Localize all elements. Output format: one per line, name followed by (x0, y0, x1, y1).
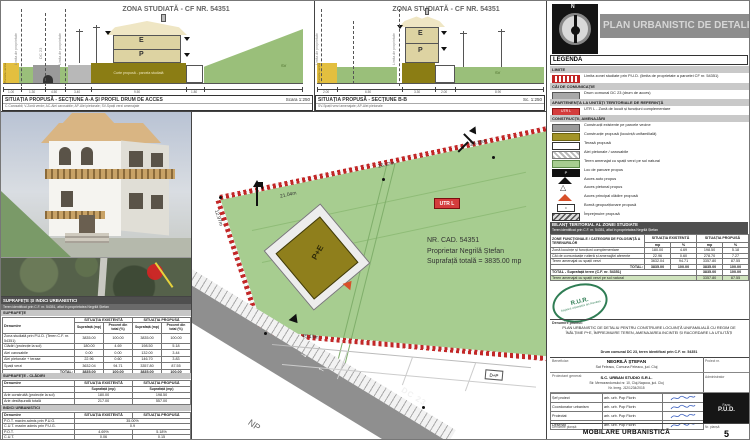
floor-line (405, 43, 439, 44)
divider-line (550, 423, 750, 424)
legend-swatch-terrace (552, 142, 580, 150)
indici-table: DenumireSITUAȚIA EXISTENTĂSITUAȚIA PROPU… (2, 412, 190, 440)
dim-tick (402, 87, 403, 92)
dim-label: 9.50 (134, 90, 140, 94)
render-window (81, 147, 93, 165)
floor-label-p: P (418, 47, 423, 54)
legend-label: Acces pietonal propus (584, 185, 746, 189)
legend-item: • Bornă geopoziționare propusă (552, 203, 748, 212)
legend-item: Împrejmuire propusă (552, 212, 748, 221)
legend-swatch-boundary (552, 75, 580, 83)
legend-item: Acces principal clădire propusă (552, 194, 748, 203)
utility-pole (501, 29, 502, 67)
ground-line (3, 83, 303, 84)
role-label: Șef proiect (551, 394, 603, 403)
section-a-title: ZONA STUDIATĂ - CF NR. 54351 (91, 6, 261, 13)
legend-item: Limita zonei studiate prin P.U.D. (limit… (552, 74, 748, 83)
compass-n-label: N (571, 4, 575, 10)
dim-label: 4.50 (51, 90, 57, 94)
role-label: Coordonator urbanism (551, 403, 603, 412)
geodetic-point (492, 156, 495, 159)
location-map (1, 258, 191, 296)
neighbor-parcel-strip: Parcela vecină (3, 63, 19, 83)
property-limit-line (399, 9, 400, 86)
cad-owner: Proprietar Negrilă Ștefan (427, 247, 545, 258)
cell: 3357.80 (697, 275, 723, 281)
render-porch (45, 211, 105, 219)
dim-tick (3, 87, 4, 92)
utility-pole (79, 29, 80, 63)
col-header: Suprafață (mp) (75, 323, 104, 334)
np-label: NP (246, 417, 262, 432)
neighbor-building-label: D+P (485, 369, 504, 381)
divider-line (550, 357, 750, 358)
signature-scribble (670, 412, 696, 420)
cell: 87.55 (723, 275, 749, 281)
legend-label: Construcție propusă (locuință unifamilia… (584, 132, 746, 136)
floor-label-e: E (418, 30, 423, 37)
dimension-line (3, 89, 303, 90)
cladiri-band: SUPRAFEȚE - CLĂDIRI (1, 373, 191, 379)
utility-pole (96, 25, 97, 63)
site-plan: → → DC 23 NP P+E UTR L NR. CAD. 54351 Pr… (192, 112, 546, 440)
render-window (151, 195, 163, 209)
section-b-caption-box: SITUAȚIA PROPUSĂ - SECȚIUNE B-BSc. 1:250… (315, 95, 545, 111)
col-header: Denumire (3, 318, 75, 334)
legend-item: Construcție propusă (locuință unifamilia… (552, 132, 748, 141)
ground-line (317, 83, 544, 84)
cell: 3835.00 (133, 334, 162, 344)
level-marker (441, 31, 447, 35)
dim-tick (45, 87, 46, 92)
neighbor-parcel-line (402, 357, 413, 386)
legend-swatch-parking: P (552, 169, 580, 177)
geodetic-point (219, 196, 222, 199)
dim-label: 2.00 (441, 90, 447, 94)
dim-label: 3.30 (414, 90, 420, 94)
terrain-wedge (204, 29, 303, 83)
dim-tick (21, 87, 22, 92)
utility-pole (93, 27, 100, 28)
render-window (59, 147, 71, 165)
green-strip (337, 67, 397, 83)
legend-item: P Loc de parcare propus (552, 168, 748, 177)
legend-swatch-geo-marker: • (557, 204, 575, 212)
utility-pole (76, 31, 83, 32)
legend-label: Bornă geopoziționare propusă (584, 203, 746, 207)
dim-label: 2.00 (323, 90, 329, 94)
bilant-subtitle: Teren identificat prin C.F. nr. 54351, a… (552, 228, 748, 233)
legend-label: Acces auto propus (584, 177, 746, 181)
owner-parcel-strip (402, 63, 435, 83)
legend-swatch-green-area (552, 160, 580, 168)
dim-tick (302, 87, 303, 92)
property-limit-line (353, 21, 354, 84)
dim-tick (435, 87, 436, 92)
proiect-nr-label: Proiect nr. (705, 359, 720, 363)
suprafete-band: SUPRAFEȚE (1, 310, 191, 316)
limit-label: Limita de proprietate (14, 15, 18, 65)
dim-tick (204, 87, 205, 92)
cladiri-table: DenumireSITUAȚIA EXISTENTĂSITUAȚIA PROPU… (2, 380, 190, 405)
table-row: Arie desfășurată totală (3, 399, 75, 405)
terrain-label: SV (495, 70, 500, 75)
bilant-table: ZONE FUNCȚIONALE / CATEGORII DE FOLOSINȚ… (550, 234, 748, 281)
beneficiar-name: NEGRILĂ ȘTEFAN (550, 359, 703, 364)
dim-tick (317, 87, 318, 92)
signature-scribble (670, 403, 696, 411)
legend-label: Împrejmuire propusă (584, 212, 746, 216)
cell: 557.00 (133, 399, 191, 405)
house-roof (399, 15, 445, 27)
neighbor-parcel-strip: Parcela vecină (317, 63, 337, 83)
bilant-header: BILANȚ TERITORIAL AL ZONEI STUDIATE Tere… (550, 222, 748, 234)
role-label: Proiectat (551, 412, 603, 421)
dim-label: 1.00 (8, 90, 14, 94)
legend-section-cai: CĂI DE COMUNICAȚIE (550, 83, 750, 90)
indici-band: INDICI URBANISTICI (1, 405, 191, 411)
plansa-name: MOBILARE URBANISTICĂ (550, 429, 703, 436)
road-axis-label: DC 23 (38, 29, 43, 59)
dim-tick (337, 87, 338, 92)
compass-hub (571, 26, 580, 35)
dim-tick (91, 87, 92, 92)
cell: 0.06 (75, 435, 133, 440)
floor-label-p: P (139, 51, 144, 58)
signature-scribble (670, 394, 696, 402)
limit-label: Limita de proprietate (315, 15, 319, 65)
project-description: PLAN URBANISTIC DE DETALIU PENTRU CONSTR… (550, 326, 748, 336)
role-name: arh. urb. Pop Florin (603, 403, 663, 412)
legend-swatch-alleys (552, 151, 580, 159)
property-limit-line (65, 9, 66, 86)
administrator-label: Administrator (705, 375, 724, 379)
dim-tick (186, 87, 187, 92)
chimney (161, 14, 166, 22)
col-header: Procent din total (%) (162, 323, 191, 334)
utility-pole (498, 31, 505, 32)
terrace-strip (435, 65, 455, 83)
legend-item: △ Acces pietonal propus (552, 185, 748, 194)
plansa-nr: 5 (703, 429, 750, 439)
render-balcony (45, 169, 175, 179)
owner-parcel-strip: Curte propusă - parcela studiată (91, 63, 186, 83)
terrain-label: SV (281, 63, 286, 68)
neighbor-parcel-line (465, 363, 476, 392)
legend-title: LEGENDĂ (550, 55, 748, 65)
map-road (97, 258, 107, 296)
table-row: C.U.T. (3, 435, 75, 440)
section-a-caption-box: SITUAȚIA PROPUSĂ - SECȚIUNE A-A ȘI PROFI… (2, 95, 313, 111)
section-b-caption: SITUAȚIA PROPUSĂ - SECȚIUNE B-B (318, 97, 407, 103)
geodetic-point (382, 178, 385, 181)
utility-pole (460, 33, 467, 34)
project-label: Denumire proiect: (552, 321, 583, 325)
legend-swatch-existing-buildings (552, 124, 580, 132)
legend-swatch-main-access (558, 194, 572, 201)
table-row: Zona studiată prin P.U.D. (Teren C.F. nr… (3, 334, 75, 344)
legend-label: Terasă propusă (584, 141, 746, 145)
legend-label: Loc de parcare propus (584, 168, 746, 172)
section-b-title: ZONA STUDIATĂ - CF NR. 54351 (366, 6, 526, 13)
suprafete-table: DenumireSITUAȚIA EXISTENTĂSITUAȚIA PROPU… (2, 317, 190, 376)
divider-line (550, 372, 750, 373)
level-marker (105, 31, 111, 35)
cell: 100.00 (162, 334, 191, 344)
col-header: SITUAȚIA PROPUSĂ (697, 235, 749, 243)
render-steps (65, 233, 109, 243)
proiectant-reg: Nr. înreg. J12/1234/2015 (550, 386, 703, 390)
property-limit-line (321, 9, 322, 86)
cell: 3835.00 (75, 334, 104, 344)
legend-label: Teren amenajat cu spații verzi pe sol na… (584, 159, 746, 163)
chimney (425, 8, 429, 15)
cell: 217.00 (75, 399, 133, 405)
road-strip (68, 65, 91, 83)
dim-tick (543, 87, 544, 92)
col-header: Procent din total (%) (104, 323, 133, 334)
geodetic-point (264, 332, 267, 335)
role-name: arh. urb. Pop Florin (603, 394, 663, 403)
zigzag-pointer-head (469, 125, 479, 135)
cell: 100.00 (104, 334, 133, 344)
limit-label: Limita de proprietate (58, 15, 62, 65)
faza-value: P.U.D. (718, 407, 735, 413)
page-title: PLAN URBANISTIC DE DETALIU (600, 14, 750, 38)
section-b-abbrev: SV-Spații verzi amenajate; AP-Alei pieto… (316, 103, 544, 108)
legend-label: Alei pietonale / carosabile (584, 150, 746, 154)
house-3d-render (1, 112, 191, 257)
tables-title-band: SUPRAFEȚE ȘI INDICI URBANISTICI (1, 297, 191, 304)
legend-label: Drum comunal DC 23 (drum de acces) (584, 91, 746, 95)
proiectant-name: S.C. URBAN STUDIO S.R.L. (550, 375, 703, 380)
legend-swatch-pedestrian-access: △ (560, 183, 566, 192)
faza-cell: Faza: P.U.D. (703, 393, 750, 423)
dim-label: 3.40 (74, 90, 80, 94)
floor-label-e: E (139, 37, 144, 44)
dim-label: 6.50 (365, 90, 371, 94)
legend-swatch-proposed-building (552, 133, 580, 141)
green-strip (60, 67, 68, 83)
geodetic-point (422, 406, 425, 409)
house-roof (107, 21, 187, 35)
cell: 0.15 (133, 435, 191, 440)
terrace-strip (186, 65, 203, 83)
divider-line (550, 319, 750, 320)
proiectant-address: Str. Memorandumului nr. 10, Cluj-Napoca,… (550, 381, 703, 385)
north-compass-icon: N (552, 4, 598, 54)
dim-tick (65, 87, 66, 92)
level-marker (441, 47, 447, 51)
dimension-line (317, 89, 544, 90)
legend-section-constructii: CONSTRUCȚII, AMENAJĂRI (550, 115, 750, 122)
green-total-row: Teren amenajat cu spații verzi pe sol na… (551, 275, 697, 281)
level-marker (184, 37, 190, 41)
dim-tick (455, 87, 456, 92)
legend-section-limite: LIMITE (550, 66, 750, 73)
legend-label: Limita zonei studiate prin P.U.D. (limit… (584, 74, 746, 78)
level-marker (184, 53, 190, 57)
signature-cell (663, 412, 704, 421)
beneficiar-address: Sat Feleacu, Comuna Feleacu, jud. Cluj (550, 365, 703, 369)
dim-label: 1.30 (29, 90, 35, 94)
col-header: Suprafață (mp) (133, 323, 162, 334)
legend-label: Construcții existente pe parcele vecine (584, 123, 746, 127)
render-window (61, 191, 73, 207)
col-header: SITUAȚIA EXISTENTĂ (645, 235, 697, 243)
section-a-caption: SITUAȚIA PROPUSĂ - SECȚIUNE A-A ȘI PROFI… (5, 97, 163, 103)
col-header: ZONE FUNCȚIONALE / CATEGORII DE FOLOSINȚ… (551, 235, 645, 248)
signature-cell (663, 394, 704, 403)
project-address: Drum comunal DC 23, teren identificat pr… (550, 350, 748, 354)
signature-cell (663, 403, 704, 412)
north-arrow-flag (257, 182, 263, 190)
legend-label: Acces principal clădire propusă (584, 194, 746, 198)
legend-item: Terasă propusă (552, 141, 748, 150)
cadastre-text: NR. CAD. 54351 Proprietar Negrilă Ștefan… (427, 236, 545, 268)
render-window (151, 153, 163, 167)
cad-number: NR. CAD. 54351 (427, 236, 545, 247)
property-limit-line (21, 9, 22, 86)
render-window (129, 151, 143, 167)
utr-label-box: UTR L (434, 198, 460, 209)
section-b-scale: Sc. 1:250 (523, 97, 542, 103)
plan-sheet: ZONA STUDIATĂ - CF NR. 54351 Parcela vec… (0, 0, 750, 440)
level-marker (397, 25, 403, 29)
legend-label: UTR L - Zonă de locuit și funcțiuni comp… (584, 107, 746, 111)
section-a-scale: Scara 1:250 (286, 97, 310, 103)
legend-swatch-fence (552, 213, 580, 221)
floor-line (113, 49, 181, 50)
legend-section-utr: APARTENENȚA LA UNITĂȚI TERITORIALE DE RE… (550, 99, 750, 106)
divider-line (546, 1, 547, 440)
role-name: arh. urb. Pop Florin (603, 412, 663, 421)
section-a-abbrev: C-Carosabil; V-Zonă verde; AC-Alei caros… (3, 103, 312, 108)
render-roof-main (41, 123, 161, 143)
cad-area: Suprafață totală = 3835.00 mp (427, 257, 545, 268)
legend-item: Teren amenajat cu spații verzi pe sol na… (552, 159, 748, 168)
limit-label: Limita de proprietate (392, 15, 396, 65)
dim-label: 8.90 (495, 90, 501, 94)
utility-pole (463, 31, 464, 67)
render-window (129, 193, 143, 209)
dim-label: 1.80 (191, 90, 197, 94)
road-axis-line (45, 13, 46, 86)
